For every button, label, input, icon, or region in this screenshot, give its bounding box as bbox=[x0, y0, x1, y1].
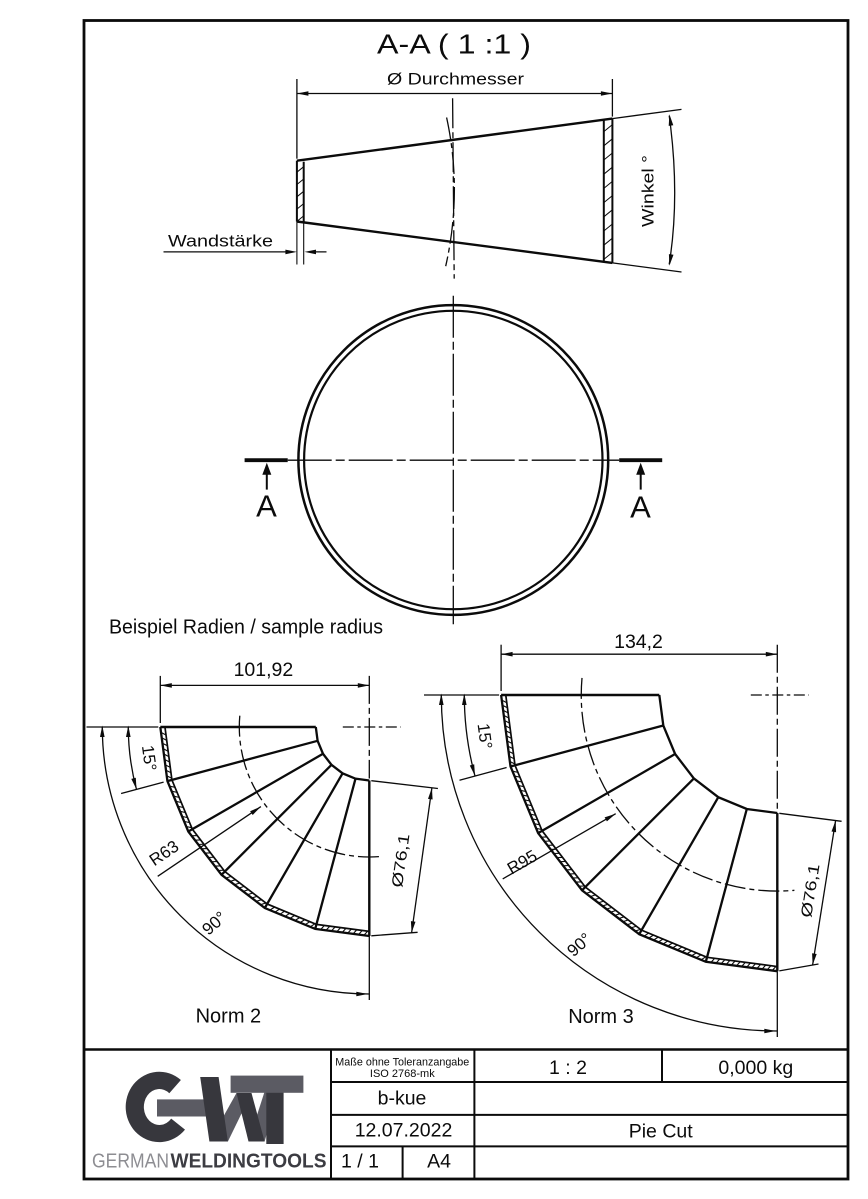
svg-text:b-kue: b-kue bbox=[378, 1087, 427, 1109]
svg-text:WELDINGTOOLS: WELDINGTOOLS bbox=[171, 1150, 327, 1173]
svg-text:Maße ohne Toleranzangabe: Maße ohne Toleranzangabe bbox=[335, 1057, 469, 1069]
svg-text:Wandstärke: Wandstärke bbox=[168, 231, 273, 250]
svg-text:Winkel °: Winkel ° bbox=[640, 155, 658, 227]
svg-text:101,92: 101,92 bbox=[234, 659, 294, 681]
svg-text:GERMAN: GERMAN bbox=[92, 1150, 169, 1173]
svg-text:Norm 3: Norm 3 bbox=[568, 1006, 634, 1028]
svg-text:15°: 15° bbox=[138, 744, 160, 772]
svg-text:12.07.2022: 12.07.2022 bbox=[355, 1119, 453, 1141]
svg-text:ISO 2768-mk: ISO 2768-mk bbox=[370, 1068, 435, 1080]
svg-text:134,2: 134,2 bbox=[614, 631, 663, 653]
svg-text:Beispiel Radien / sample radiu: Beispiel Radien / sample radius bbox=[109, 617, 383, 639]
svg-text:Norm 2: Norm 2 bbox=[196, 1006, 262, 1028]
svg-text:A-A ( 1 :1 ): A-A ( 1 :1 ) bbox=[377, 29, 531, 60]
svg-text:15°: 15° bbox=[474, 722, 496, 750]
svg-text:Ø Durchmesser: Ø Durchmesser bbox=[387, 70, 524, 89]
svg-text:Pie Cut: Pie Cut bbox=[629, 1121, 694, 1143]
svg-text:A: A bbox=[630, 490, 651, 525]
svg-text:0,000 kg: 0,000 kg bbox=[718, 1057, 793, 1079]
svg-text:1 : 2: 1 : 2 bbox=[549, 1057, 587, 1079]
svg-text:A: A bbox=[256, 489, 277, 524]
svg-text:1 / 1: 1 / 1 bbox=[341, 1151, 379, 1173]
svg-text:A4: A4 bbox=[427, 1151, 451, 1173]
